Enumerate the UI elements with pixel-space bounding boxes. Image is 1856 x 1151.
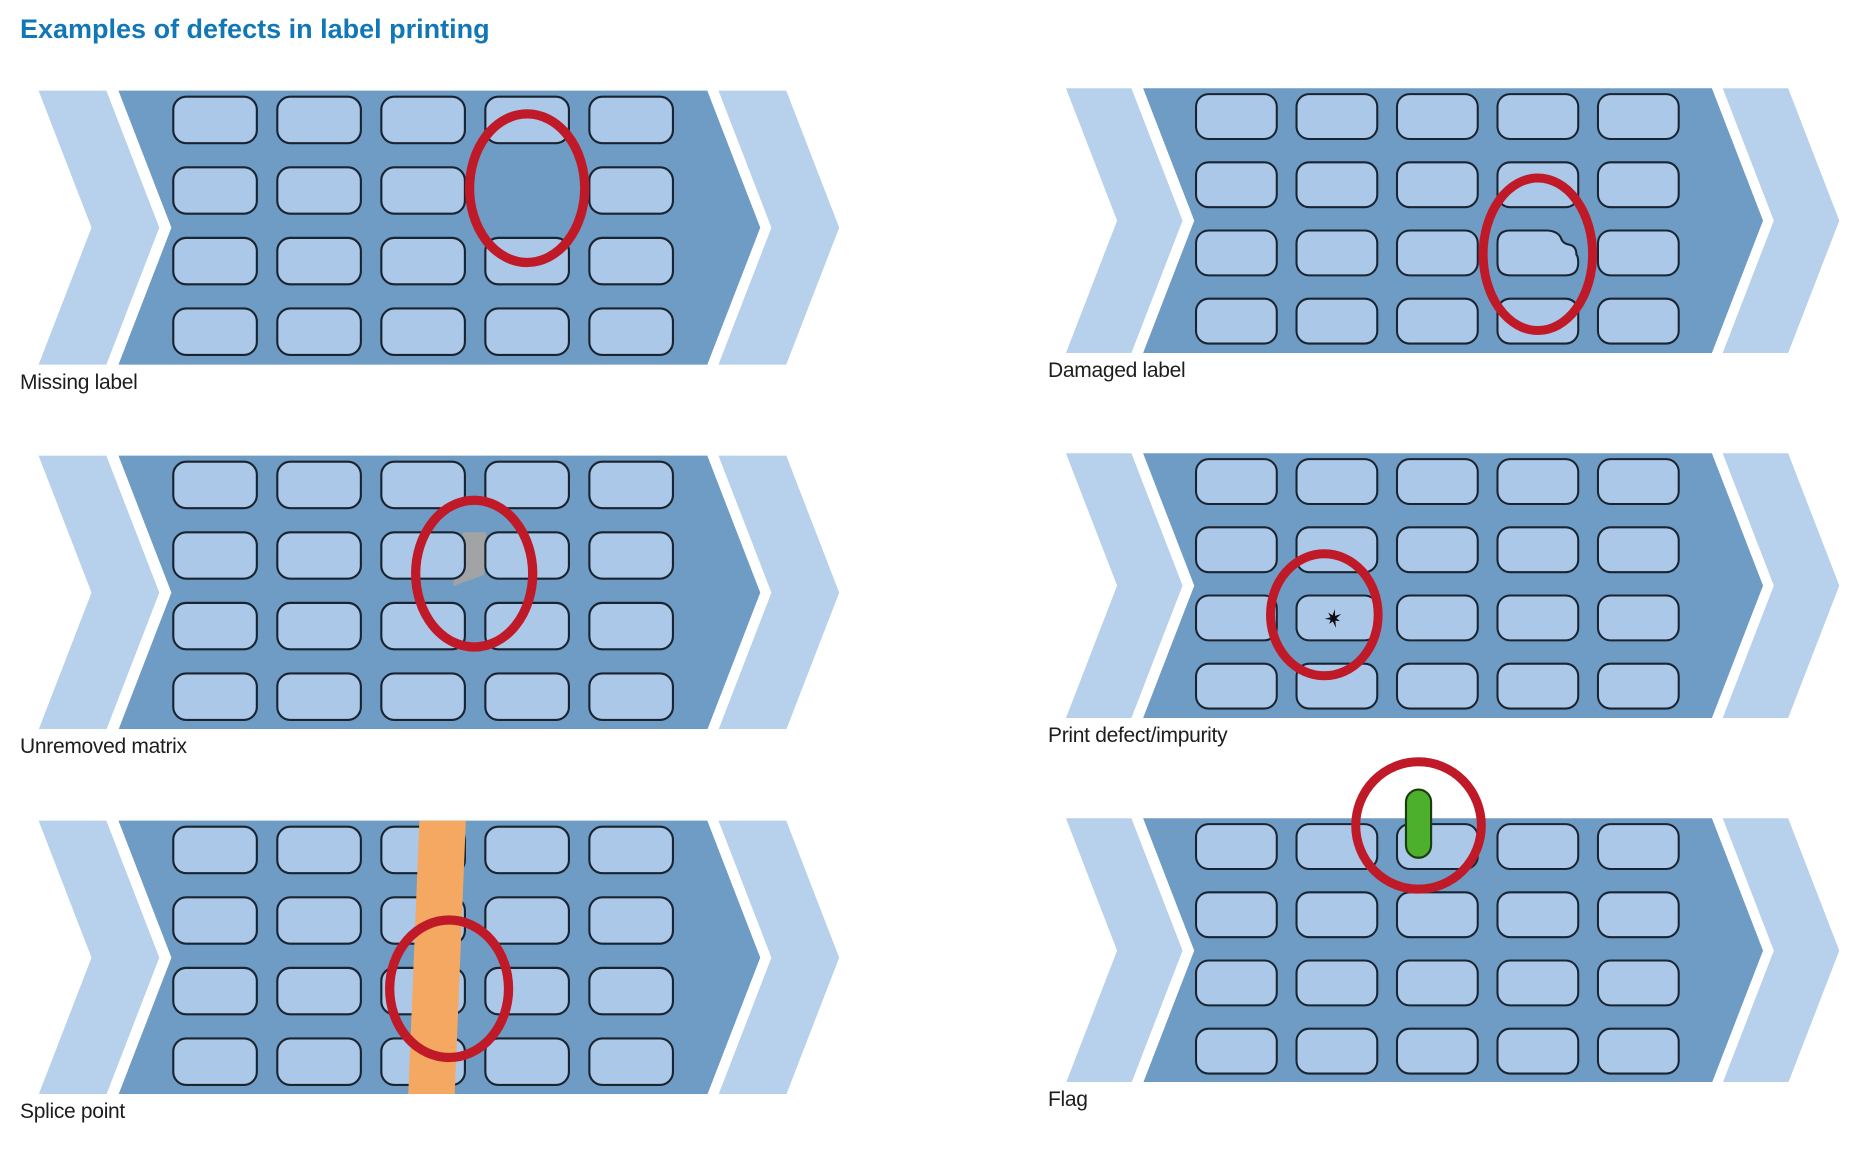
label xyxy=(1598,527,1679,572)
label xyxy=(381,308,465,354)
label xyxy=(277,967,361,1013)
label xyxy=(589,603,673,649)
defect-caption: Damaged label xyxy=(1048,359,1842,382)
label xyxy=(277,461,361,507)
label xyxy=(381,238,465,284)
label xyxy=(1397,230,1478,275)
label xyxy=(1297,595,1378,640)
defect-panel-damaged-label: Damaged label xyxy=(1048,59,1842,394)
label xyxy=(1297,892,1378,937)
label xyxy=(1397,960,1478,1005)
label xyxy=(1497,824,1578,869)
label xyxy=(589,461,673,507)
label xyxy=(1196,595,1277,640)
label xyxy=(173,967,257,1013)
label xyxy=(1196,162,1277,207)
label xyxy=(1196,299,1277,344)
label xyxy=(485,897,569,943)
label xyxy=(173,826,257,872)
label xyxy=(485,673,569,719)
web-diagram-splice-point xyxy=(20,751,842,1095)
label xyxy=(1397,299,1478,344)
label xyxy=(1397,162,1478,207)
label xyxy=(1397,663,1478,708)
label xyxy=(1196,459,1277,504)
label xyxy=(1297,94,1378,139)
label xyxy=(1297,162,1378,207)
web-diagram-unremoved-matrix xyxy=(20,386,842,730)
label xyxy=(277,897,361,943)
web-diagram-print-defect xyxy=(1048,386,1842,718)
label xyxy=(173,167,257,213)
flag-marker xyxy=(1406,789,1431,857)
label xyxy=(1598,230,1679,275)
label xyxy=(381,167,465,213)
label xyxy=(381,673,465,719)
label xyxy=(589,1038,673,1084)
label xyxy=(1297,299,1378,344)
label xyxy=(589,238,673,284)
label xyxy=(1397,595,1478,640)
label xyxy=(1598,94,1679,139)
label xyxy=(1598,595,1679,640)
label xyxy=(589,308,673,354)
label xyxy=(173,603,257,649)
label xyxy=(277,167,361,213)
label xyxy=(277,532,361,578)
label xyxy=(1497,1028,1578,1073)
label xyxy=(1196,960,1277,1005)
label xyxy=(1297,1028,1378,1073)
label xyxy=(485,308,569,354)
label xyxy=(277,1038,361,1084)
label-printing-defects-page: Examples of defects in label printing Mi… xyxy=(0,0,1856,1123)
label xyxy=(1397,527,1478,572)
label xyxy=(173,532,257,578)
defect-caption: Flag xyxy=(1048,1088,1842,1111)
label xyxy=(485,1038,569,1084)
web-diagram-flag xyxy=(1048,751,1842,1083)
label xyxy=(1598,892,1679,937)
label xyxy=(1598,663,1679,708)
label xyxy=(1397,892,1478,937)
label xyxy=(589,532,673,578)
label xyxy=(1497,527,1578,572)
label xyxy=(1497,94,1578,139)
label xyxy=(1397,1028,1478,1073)
label xyxy=(1397,94,1478,139)
label xyxy=(1196,527,1277,572)
label xyxy=(1196,1028,1277,1073)
label xyxy=(1497,960,1578,1005)
label xyxy=(589,167,673,213)
label xyxy=(1297,527,1378,572)
label xyxy=(1297,960,1378,1005)
label xyxy=(1196,663,1277,708)
label xyxy=(485,461,569,507)
defect-caption: Splice point xyxy=(20,1100,842,1123)
label xyxy=(589,97,673,143)
label xyxy=(1598,459,1679,504)
defect-panel-splice-point: Splice point xyxy=(20,789,842,1124)
label xyxy=(1497,459,1578,504)
defect-panel-unremoved-matrix: Unremoved matrix xyxy=(20,424,842,759)
label xyxy=(1196,892,1277,937)
label xyxy=(1598,960,1679,1005)
label xyxy=(589,673,673,719)
defect-panel-print-defect: Print defect/impurity xyxy=(1048,424,1842,759)
defects-grid: Missing label Damaged label Unremoved ma… xyxy=(20,59,1856,1123)
label xyxy=(1297,459,1378,504)
label xyxy=(589,897,673,943)
label xyxy=(485,967,569,1013)
label xyxy=(1497,892,1578,937)
label xyxy=(381,97,465,143)
label xyxy=(277,238,361,284)
web-diagram-missing-label xyxy=(20,21,842,365)
label xyxy=(1196,824,1277,869)
label xyxy=(1297,230,1378,275)
label xyxy=(485,826,569,872)
label xyxy=(173,1038,257,1084)
label xyxy=(1497,663,1578,708)
label xyxy=(1598,162,1679,207)
label xyxy=(277,308,361,354)
label xyxy=(1196,230,1277,275)
defect-panel-flag: Flag xyxy=(1048,789,1842,1124)
defect-panel-missing-label: Missing label xyxy=(20,59,842,394)
label xyxy=(1598,1028,1679,1073)
label xyxy=(173,673,257,719)
label xyxy=(589,967,673,1013)
label xyxy=(589,826,673,872)
label xyxy=(1598,299,1679,344)
label xyxy=(1497,595,1578,640)
label xyxy=(277,603,361,649)
label xyxy=(277,97,361,143)
label xyxy=(277,673,361,719)
label xyxy=(1397,459,1478,504)
label xyxy=(277,826,361,872)
label xyxy=(173,308,257,354)
label xyxy=(173,97,257,143)
web-diagram-damaged-label xyxy=(1048,21,1842,353)
label xyxy=(173,461,257,507)
label xyxy=(1196,94,1277,139)
label xyxy=(1598,824,1679,869)
defect-caption: Print defect/impurity xyxy=(1048,724,1842,747)
label xyxy=(173,238,257,284)
label xyxy=(173,897,257,943)
